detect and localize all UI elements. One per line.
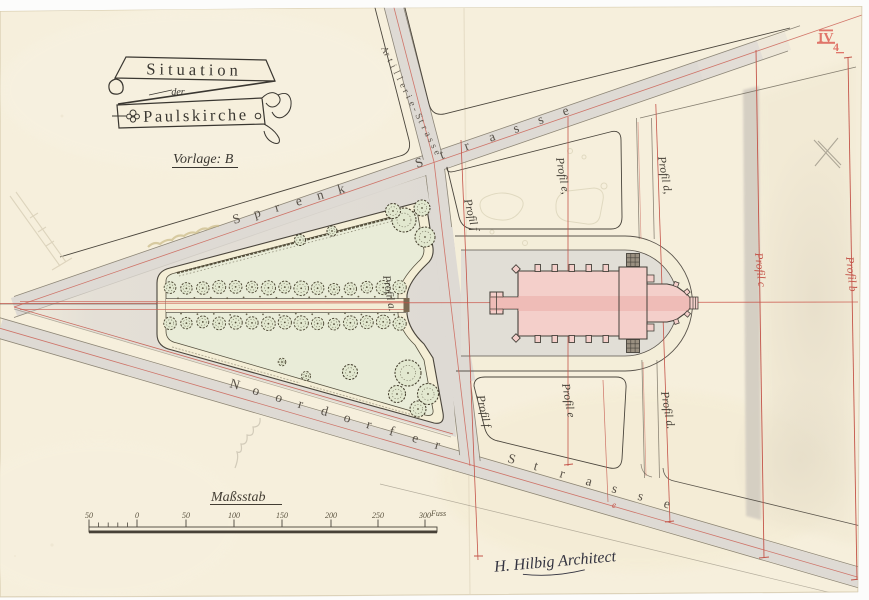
- svg-text:50: 50: [182, 511, 190, 520]
- svg-text:250: 250: [372, 511, 384, 520]
- svg-text:e: e: [612, 500, 616, 510]
- svg-text:200: 200: [325, 511, 337, 520]
- svg-text:50: 50: [85, 511, 93, 520]
- svg-text:der: der: [171, 87, 184, 98]
- svg-text:Situation: Situation: [146, 59, 242, 79]
- svg-text:Paulskirche: Paulskirche: [143, 105, 249, 126]
- svg-text:Vorlage: B: Vorlage: B: [173, 152, 234, 167]
- svg-text:Maßsstab: Maßsstab: [210, 490, 265, 505]
- svg-text:100: 100: [228, 511, 240, 520]
- svg-text:Fuss: Fuss: [430, 509, 446, 518]
- svg-text:150: 150: [276, 511, 288, 520]
- svg-text:0: 0: [135, 511, 139, 520]
- svg-text:4: 4: [833, 40, 839, 54]
- svg-text:300: 300: [418, 511, 431, 520]
